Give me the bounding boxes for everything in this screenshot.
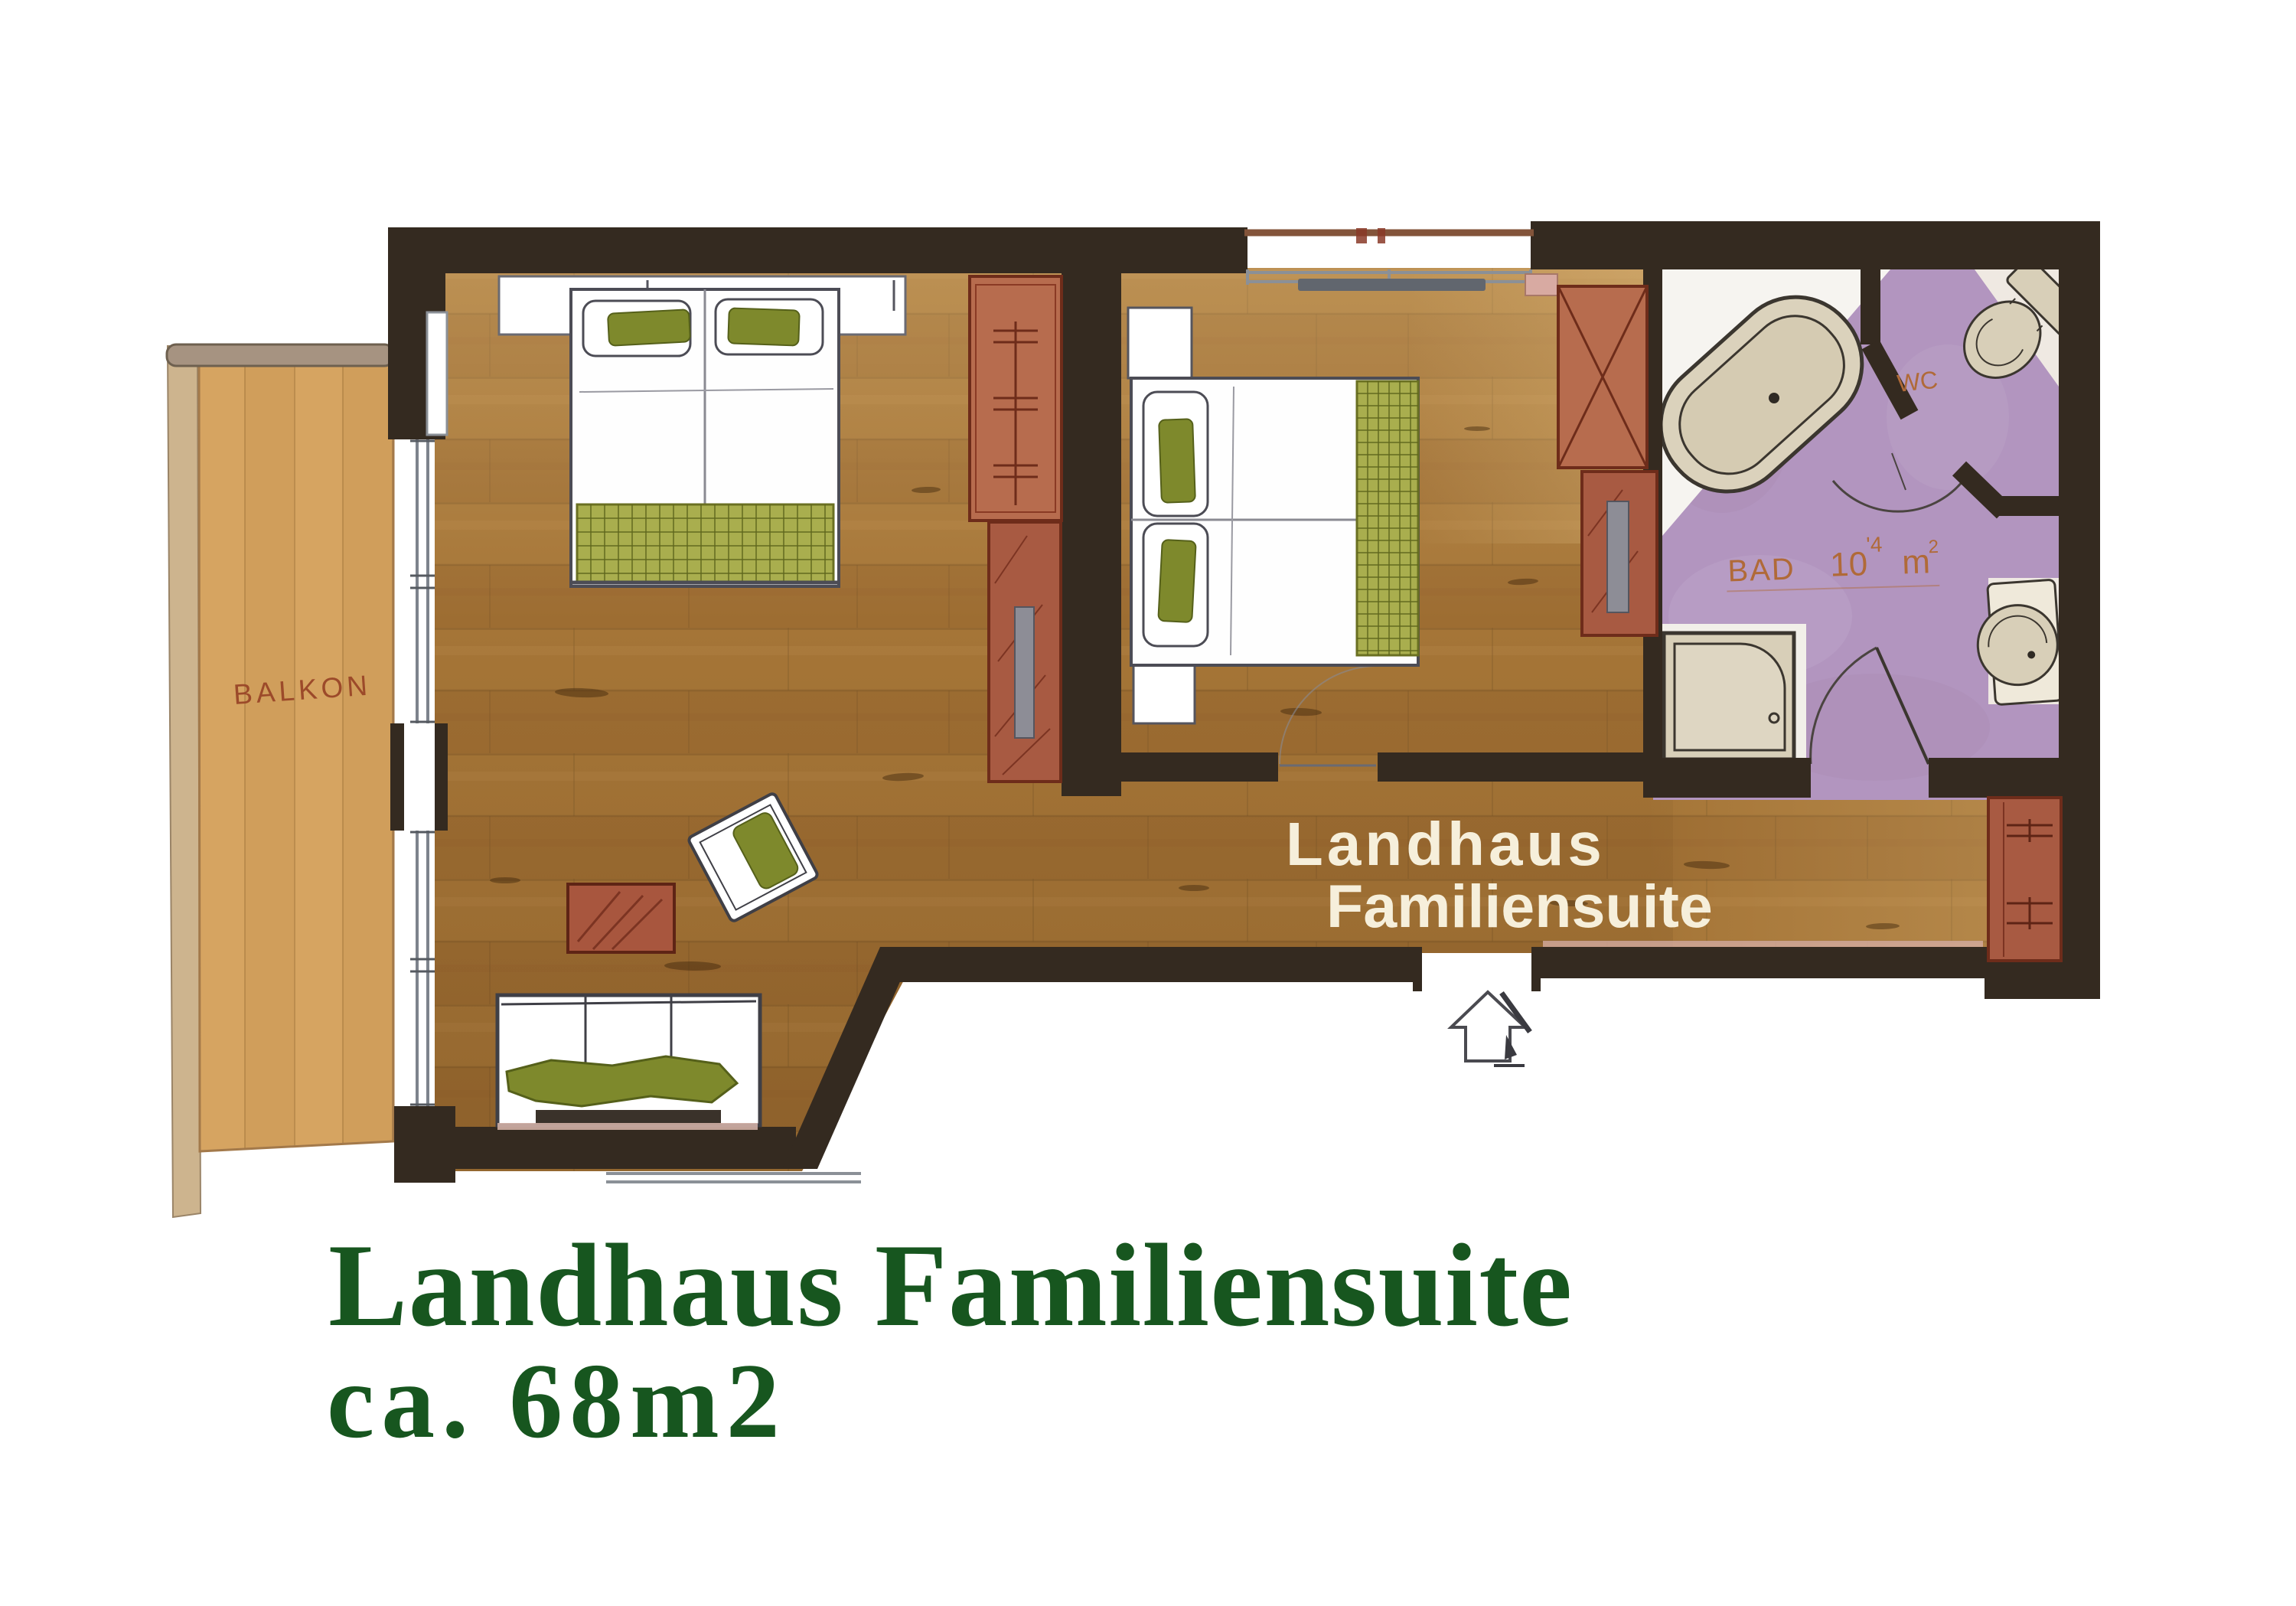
- svg-text:ca. 68m2: ca. 68m2: [327, 1342, 787, 1461]
- svg-text:Landhaus Familiensuite: Landhaus Familiensuite: [328, 1219, 1573, 1351]
- svg-text:Landhaus: Landhaus: [1286, 810, 1606, 878]
- svg-text:WC: WC: [1896, 366, 1939, 397]
- svg-text:2: 2: [1928, 537, 1939, 557]
- svg-text:'4: '4: [1866, 532, 1883, 557]
- svg-text:BAD: BAD: [1727, 552, 1796, 588]
- svg-text:m: m: [1901, 543, 1930, 581]
- svg-text:10: 10: [1829, 545, 1868, 584]
- svg-text:Familiensuite: Familiensuite: [1326, 872, 1713, 940]
